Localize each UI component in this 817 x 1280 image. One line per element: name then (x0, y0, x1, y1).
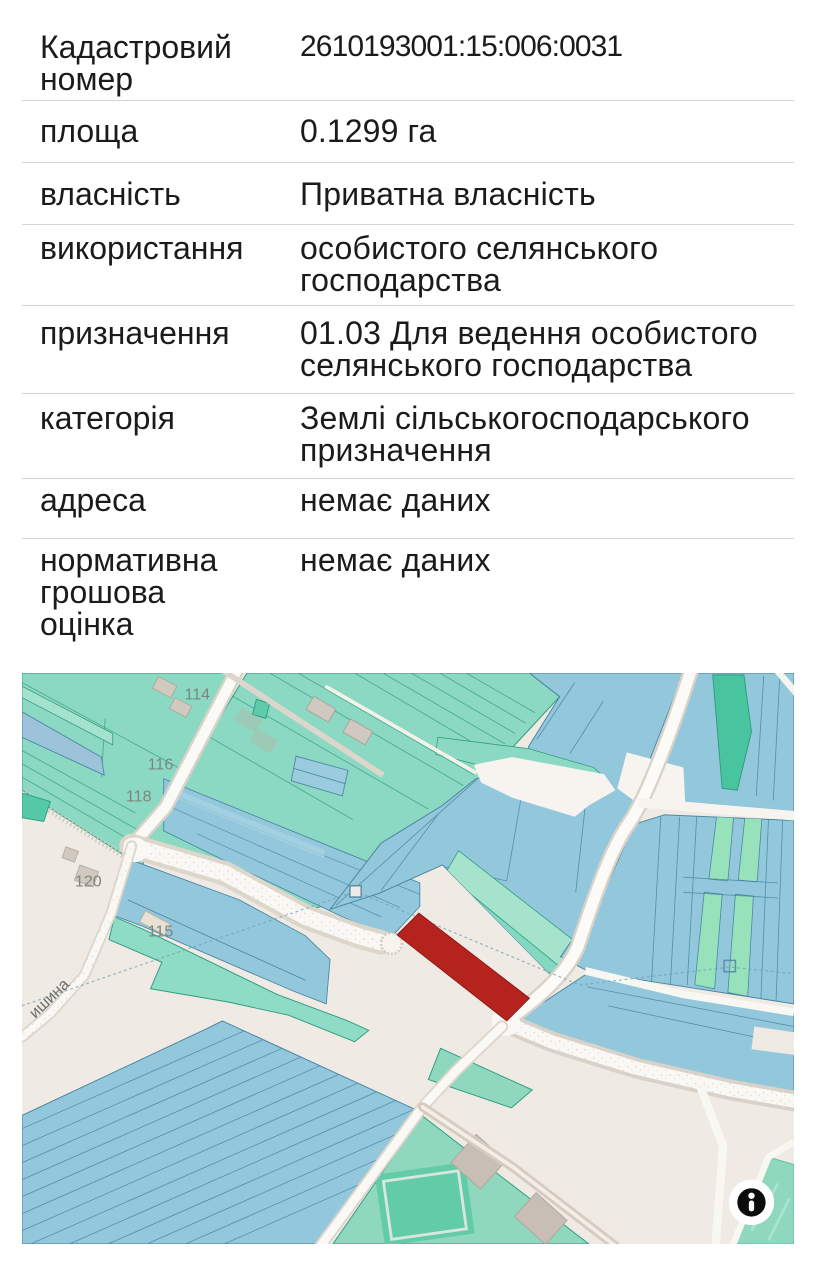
svg-text:120: 120 (75, 873, 102, 891)
svg-text:114: 114 (185, 685, 211, 703)
svg-text:115: 115 (148, 923, 174, 941)
svg-text:118: 118 (126, 788, 152, 806)
svg-text:116: 116 (148, 755, 174, 773)
